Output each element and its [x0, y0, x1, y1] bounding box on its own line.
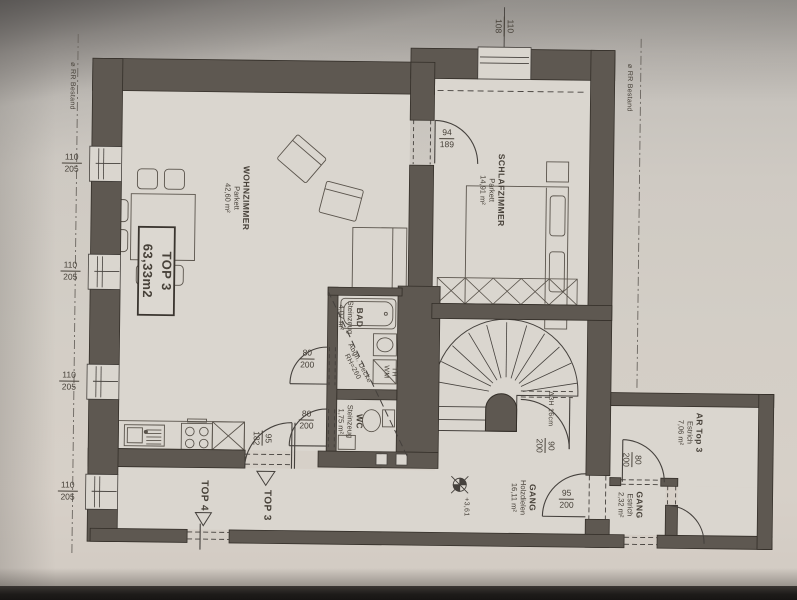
door-dim-label-wc: 80 200 — [299, 408, 315, 431]
room-name: WOHNZIMMER — [241, 166, 252, 231]
room-floor: Estrich — [685, 421, 694, 444]
dim-width: 110 — [503, 16, 515, 36]
level-label: +3,61 — [461, 497, 470, 516]
room-area: 4,07 m² — [337, 305, 346, 331]
level-value: +3,61 — [461, 497, 470, 516]
bestand-note-left: ⌀ RR Bestand — [67, 62, 76, 110]
room-area: 2,32 m² — [616, 492, 625, 518]
bestand-text: ⌀ RR Bestand — [67, 62, 76, 110]
room-label-gang: GANG Holzdielen 16,11 m² — [509, 480, 538, 515]
dim-height: 200 — [299, 421, 315, 432]
room-label-gang-klein: GANG Estrich 2,32 m² — [616, 491, 645, 518]
unit-area-label: TOP 3 63,33m2 — [137, 244, 175, 299]
room-name: SCHLAFZIMMER — [496, 154, 507, 227]
corridor-label-top3: TOP 3 — [260, 490, 272, 521]
room-area: 1,75 m² — [336, 409, 345, 435]
boiler-label: TH — [389, 367, 398, 377]
unit-area: 63,33m2 — [137, 244, 157, 298]
room-floor: Steinzeug — [345, 301, 354, 334]
scanned-floorplan-photo: WOHNZIMMER Parkett 42,60 m² SCHLAFZIMMER… — [0, 0, 797, 600]
room-area: 42,60 m² — [223, 183, 232, 213]
photo-edge-strip — [0, 586, 797, 600]
wall-niche — [396, 454, 407, 465]
window-dim-label: 110 205 — [59, 369, 79, 392]
room-name: GANG — [634, 491, 645, 518]
room-floor: Estrich — [625, 493, 634, 516]
dim-width: 110 — [58, 479, 78, 491]
room-floor: Steinzeug — [345, 405, 354, 438]
dim-height: 200 — [559, 500, 575, 511]
door-dim-label-gang: 95 200 — [559, 488, 575, 511]
floorplan: WOHNZIMMER Parkett 42,60 m² SCHLAFZIMMER… — [0, 0, 797, 600]
window-top — [478, 47, 531, 80]
stair-note-text: Δ3H 16cm — [545, 391, 554, 426]
level-marker — [451, 476, 468, 493]
door-dim-label-wohnung: 95 182 — [251, 430, 274, 446]
bestand-axis-right — [637, 39, 641, 391]
dim-height: 205 — [62, 164, 82, 175]
floorplan-drawing — [0, 0, 797, 600]
unit-ref: TOP 4 — [197, 480, 209, 511]
photo-bottom-shadow — [0, 568, 797, 588]
fixture-labels: TH WM — [381, 365, 398, 378]
room-floor: Parkett — [487, 178, 496, 202]
door-dim-label-schlafzimmer: 94 189 — [439, 127, 455, 150]
room-label-bad: BAD Steinzeug 4,07 m² — [336, 301, 365, 335]
dim-width: 94 — [439, 127, 455, 139]
dim-height: 205 — [59, 382, 79, 393]
unit-name: TOP 3 — [156, 251, 175, 290]
unit-ref: TOP 3 — [260, 490, 272, 521]
dim-height: 205 — [60, 272, 80, 283]
dim-height: 205 — [58, 492, 78, 503]
bestand-note-right: ⌀ RR Bestand — [624, 64, 633, 112]
dim-height: 200 — [299, 360, 315, 371]
dim-height: 200 — [621, 452, 632, 468]
dim-width: 110 — [62, 151, 82, 163]
stair-note: Δ3H 16cm — [545, 391, 554, 426]
bestand-axis-left — [72, 34, 78, 553]
window-dim-label: 110 205 — [58, 479, 78, 502]
dim-width: 95 — [261, 431, 273, 447]
dim-width: 110 — [61, 259, 81, 271]
dim-width: 80 — [631, 452, 643, 468]
washer-label: WM — [381, 365, 390, 378]
room-area: 7,06 m² — [676, 420, 685, 446]
room-label-wc: WC Steinzeug 1,75 m² — [336, 405, 365, 439]
dim-width: 110 — [59, 369, 79, 381]
room-name: GANG — [527, 484, 538, 511]
room-label-wohnzimmer: WOHNZIMMER Parkett 42,60 m² — [223, 166, 252, 231]
door-dim-label-stiege: 90 200 — [534, 438, 557, 454]
room-label-schlafzimmer: SCHLAFZIMMER Parkett 14,91 m² — [478, 154, 507, 227]
room-name: AR Top 3 — [694, 413, 705, 453]
dim-height: 182 — [251, 430, 262, 446]
dim-width: 80 — [299, 408, 315, 420]
room-area: 16,11 m² — [509, 483, 518, 512]
dim-width: 95 — [559, 488, 575, 500]
bestand-text: ⌀ RR Bestand — [624, 64, 633, 112]
wall-niche — [376, 454, 387, 465]
dim-height: 108 — [493, 16, 504, 36]
dim-height: 200 — [534, 438, 545, 454]
dim-width: 90 — [544, 438, 556, 454]
dim-width: 80 — [300, 347, 316, 359]
room-floor: Holzdielen — [518, 480, 527, 515]
window-dim-label: 110 205 — [62, 151, 82, 174]
window-dim-label: 110 205 — [60, 259, 80, 282]
room-area: 14,91 m² — [478, 175, 487, 205]
door-dim-label-bad: 80 200 — [299, 347, 315, 370]
door-dim-label-ar: 80 200 — [621, 452, 644, 468]
corridor-label-top4: TOP 4 — [197, 480, 209, 511]
opening-vestibule-south — [624, 537, 657, 544]
room-name: WC — [354, 414, 364, 429]
room-name: BAD — [355, 308, 365, 328]
window-dim-label-top: 110 108 — [493, 16, 516, 36]
stair-newel — [485, 394, 516, 432]
dim-height: 189 — [439, 139, 455, 150]
room-floor: Parkett — [232, 186, 241, 210]
room-label-ar-top3: AR Top 3 Estrich 7,06 m² — [676, 412, 705, 452]
